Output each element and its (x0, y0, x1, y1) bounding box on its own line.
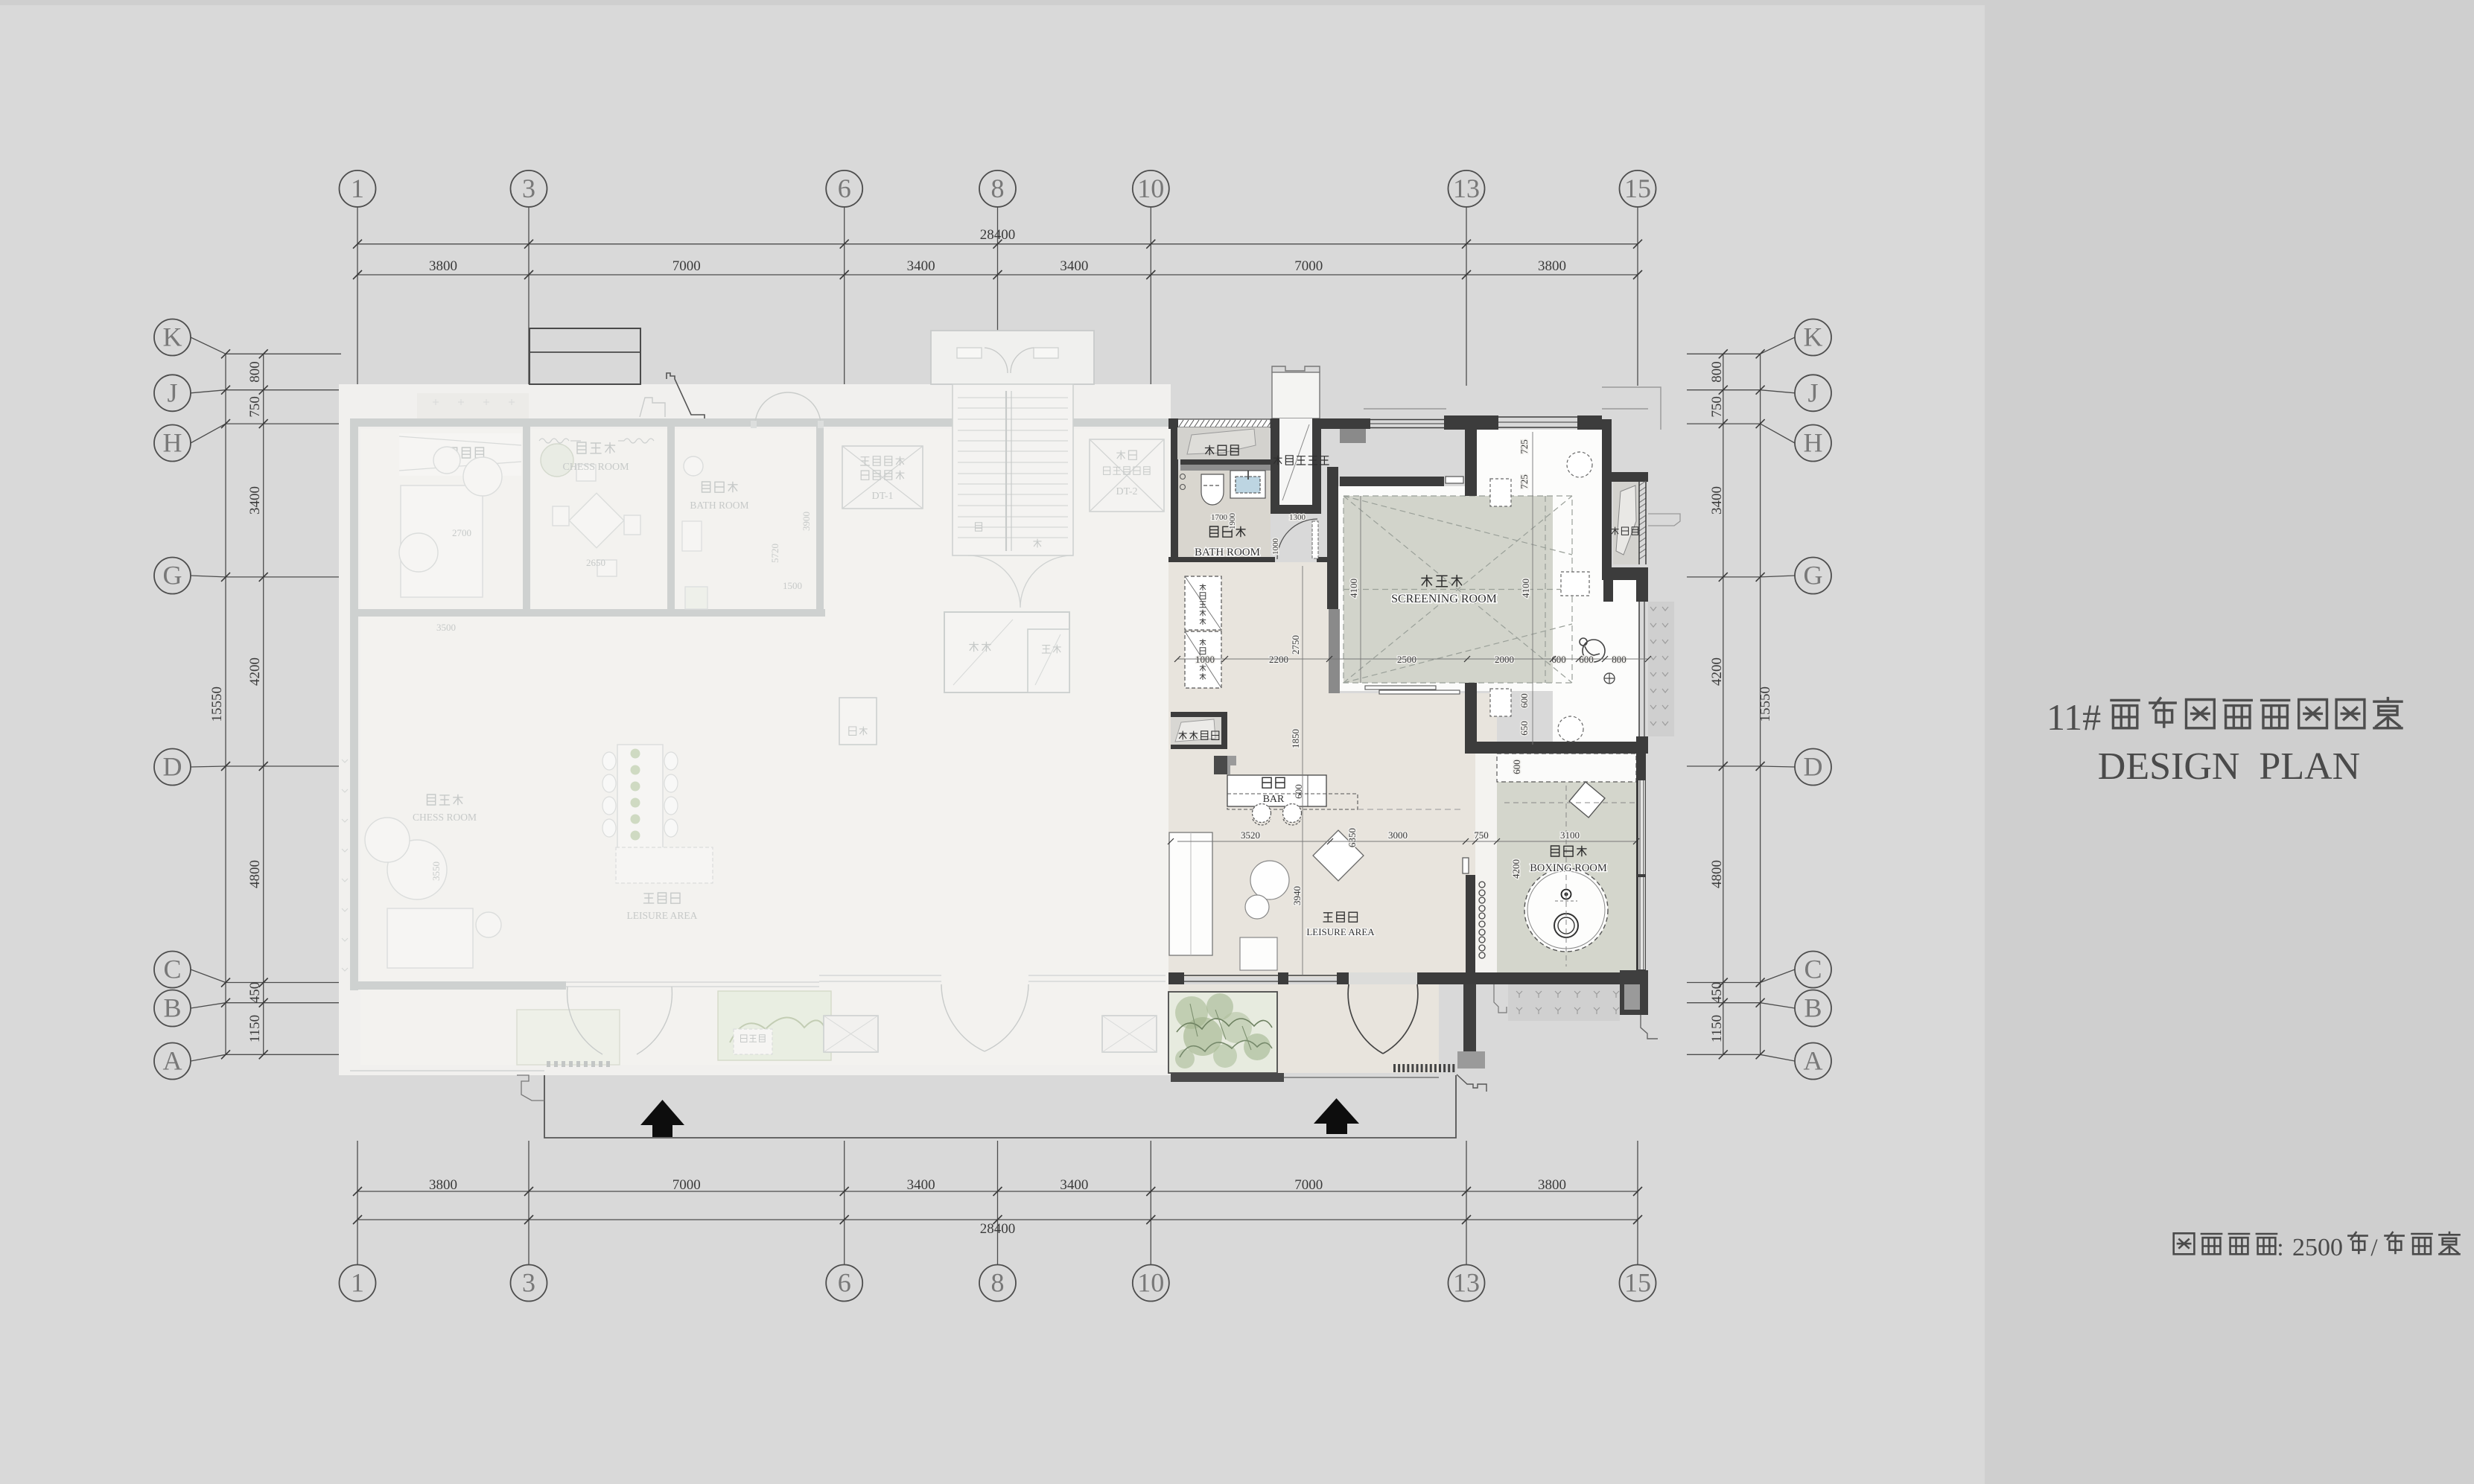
svg-text:4200: 4200 (1709, 657, 1725, 686)
svg-text:3100: 3100 (1560, 829, 1580, 841)
svg-text:1: 1 (351, 173, 364, 203)
svg-text:10: 10 (1137, 1268, 1164, 1298)
svg-text:1000: 1000 (1195, 654, 1215, 665)
svg-text:BATH ROOM: BATH ROOM (1195, 547, 1260, 558)
svg-text:2500: 2500 (1397, 654, 1416, 665)
svg-text:LEISURE AREA: LEISURE AREA (1306, 926, 1375, 937)
svg-text:LEISURE AREA: LEISURE AREA (627, 910, 698, 921)
svg-text:H: H (163, 428, 182, 458)
svg-text:3550: 3550 (430, 862, 442, 881)
svg-text:6: 6 (838, 1268, 851, 1298)
svg-text:3400: 3400 (1060, 1177, 1088, 1193)
svg-text:3400: 3400 (1060, 258, 1088, 274)
svg-text:3520: 3520 (1241, 829, 1260, 841)
svg-text:4100: 4100 (1520, 579, 1531, 598)
svg-text:725: 725 (1519, 439, 1530, 454)
svg-text:6350: 6350 (1346, 828, 1358, 847)
svg-text:3: 3 (522, 173, 535, 203)
svg-text:SCREENING ROOM: SCREENING ROOM (1391, 593, 1497, 605)
svg-text:H: H (1804, 428, 1823, 458)
svg-text:A: A (163, 1046, 182, 1076)
svg-text:600: 600 (1511, 759, 1522, 774)
svg-text:15550: 15550 (209, 687, 225, 722)
svg-text:3500: 3500 (436, 622, 456, 633)
svg-text:BOXING ROOM: BOXING ROOM (1530, 862, 1607, 874)
svg-text:DESIGN PLAN: DESIGN PLAN (2098, 745, 2360, 788)
svg-text:725: 725 (1519, 474, 1530, 489)
svg-text:3800: 3800 (429, 1177, 457, 1193)
svg-text:B: B (163, 993, 181, 1023)
svg-text:2750: 2750 (1290, 635, 1301, 655)
svg-text:CHESS ROOM: CHESS ROOM (562, 462, 629, 473)
svg-text:4100: 4100 (1348, 579, 1359, 598)
svg-text:4200: 4200 (247, 657, 263, 686)
svg-text:3000: 3000 (1388, 829, 1408, 841)
svg-text:5720: 5720 (769, 544, 780, 563)
svg-text:3400: 3400 (907, 1177, 935, 1193)
svg-text:11#: 11# (2047, 696, 2101, 738)
svg-text:3800: 3800 (1538, 258, 1566, 274)
svg-text:800: 800 (1612, 654, 1626, 665)
svg-text:600: 600 (1551, 654, 1566, 665)
svg-text:1: 1 (351, 1268, 364, 1298)
svg-text:7000: 7000 (1294, 1177, 1323, 1193)
svg-text:13: 13 (1453, 173, 1480, 203)
svg-text:15: 15 (1624, 1268, 1651, 1298)
svg-text:BATH ROOM: BATH ROOM (690, 500, 748, 511)
svg-text:DT-2: DT-2 (1116, 486, 1137, 497)
svg-text:C: C (163, 955, 181, 984)
svg-text:2650: 2650 (586, 557, 605, 568)
svg-text:15: 15 (1624, 173, 1651, 203)
svg-text:450: 450 (1709, 982, 1725, 1004)
svg-text:3800: 3800 (1538, 1177, 1566, 1193)
svg-text:CHESS ROOM: CHESS ROOM (413, 812, 477, 823)
svg-text:13: 13 (1453, 1268, 1480, 1298)
svg-text:1850: 1850 (1290, 729, 1301, 748)
svg-text:DT-1: DT-1 (871, 491, 893, 502)
svg-text:D: D (1804, 752, 1823, 782)
svg-text:D: D (163, 752, 182, 782)
svg-text:750: 750 (1709, 396, 1725, 418)
svg-text:2000: 2000 (1495, 654, 1514, 665)
svg-text:2700: 2700 (452, 527, 471, 538)
svg-text:3400: 3400 (907, 258, 935, 274)
svg-text:28400: 28400 (980, 1221, 1016, 1237)
svg-text:8: 8 (991, 1268, 1005, 1298)
svg-text:10: 10 (1137, 173, 1164, 203)
svg-text:K: K (163, 322, 182, 352)
svg-text:3400: 3400 (247, 486, 263, 515)
svg-text:800: 800 (247, 361, 263, 383)
svg-text:8: 8 (991, 173, 1005, 203)
svg-text:BAR: BAR (1263, 794, 1285, 805)
svg-text:K: K (1804, 322, 1823, 352)
svg-text:7000: 7000 (672, 1177, 701, 1193)
svg-text:1300: 1300 (1289, 513, 1306, 522)
svg-text:G: G (163, 561, 182, 590)
svg-text:1700: 1700 (1211, 513, 1228, 522)
svg-text:A: A (1804, 1046, 1823, 1076)
svg-text:28400: 28400 (980, 227, 1016, 243)
svg-text:4800: 4800 (1709, 860, 1725, 888)
svg-text:/: / (2370, 1235, 2378, 1261)
svg-text:B: B (1804, 993, 1822, 1023)
svg-text:3400: 3400 (1709, 486, 1725, 515)
svg-text:650: 650 (1519, 721, 1530, 736)
svg-text:450: 450 (247, 982, 263, 1004)
svg-text:1500: 1500 (783, 580, 802, 591)
svg-text:6: 6 (838, 173, 851, 203)
svg-text:7000: 7000 (1294, 258, 1323, 274)
svg-text:750: 750 (247, 396, 263, 418)
svg-text:3800: 3800 (429, 258, 457, 274)
svg-text:15550: 15550 (1758, 687, 1773, 722)
svg-text:4200: 4200 (1510, 859, 1521, 879)
svg-text:G: G (1804, 561, 1823, 590)
svg-text:7000: 7000 (672, 258, 701, 274)
svg-text:C: C (1804, 955, 1822, 984)
svg-text:J: J (167, 378, 177, 407)
svg-text:1000: 1000 (1271, 538, 1280, 555)
svg-text:3900: 3900 (801, 512, 812, 531)
svg-text:600: 600 (1579, 654, 1594, 665)
svg-text:3940: 3940 (1291, 886, 1303, 905)
svg-text:3: 3 (522, 1268, 535, 1298)
svg-text:600: 600 (1519, 693, 1530, 708)
svg-text:1150: 1150 (1709, 1015, 1725, 1042)
svg-text:1150: 1150 (247, 1015, 263, 1042)
svg-text:2500: 2500 (2292, 1234, 2343, 1261)
svg-text:4800: 4800 (247, 860, 263, 888)
svg-text:2200: 2200 (1269, 654, 1288, 665)
svg-text:J: J (1807, 378, 1818, 407)
svg-text:1900: 1900 (1228, 513, 1237, 530)
svg-text:750: 750 (1474, 829, 1489, 841)
svg-text::: : (2277, 1235, 2283, 1261)
svg-text:800: 800 (1709, 361, 1725, 383)
